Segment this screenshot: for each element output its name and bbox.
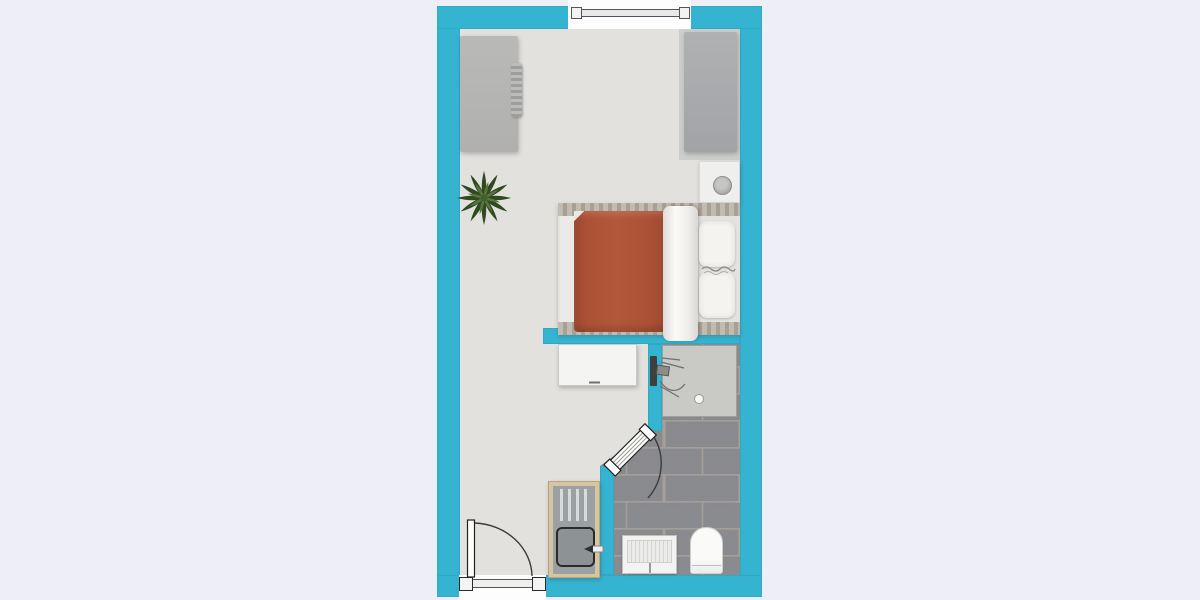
entrance-threshold	[473, 579, 532, 588]
wardrobe-handle	[511, 63, 522, 117]
wall-bathroom-lower	[600, 466, 614, 575]
shower-bracket	[650, 356, 657, 386]
toilet	[690, 527, 723, 574]
desk	[558, 344, 637, 386]
duvet-fold	[574, 211, 584, 221]
window-jamb-left	[571, 7, 582, 19]
wardrobe	[460, 36, 518, 152]
washbasin-bowl	[627, 540, 672, 563]
white-blanket	[663, 206, 698, 341]
entrance-jamb-right	[532, 577, 546, 591]
orange-duvet	[574, 211, 668, 332]
wall-right	[740, 6, 762, 597]
window-glass	[582, 9, 679, 17]
window-jamb-right	[679, 7, 690, 19]
pillow-top	[699, 221, 735, 267]
kitchen-sink	[556, 527, 595, 567]
floor-drain	[694, 394, 704, 404]
shower-area	[662, 345, 737, 417]
closet	[684, 32, 737, 152]
dish-drainer	[557, 489, 591, 521]
wall-left	[437, 6, 460, 597]
potted-plant	[452, 166, 516, 230]
toilet-seam	[692, 565, 721, 566]
lamp	[713, 176, 732, 195]
floor-plan	[0, 0, 1200, 600]
pillow-bottom	[699, 272, 735, 318]
entrance-jamb-left	[459, 577, 473, 591]
